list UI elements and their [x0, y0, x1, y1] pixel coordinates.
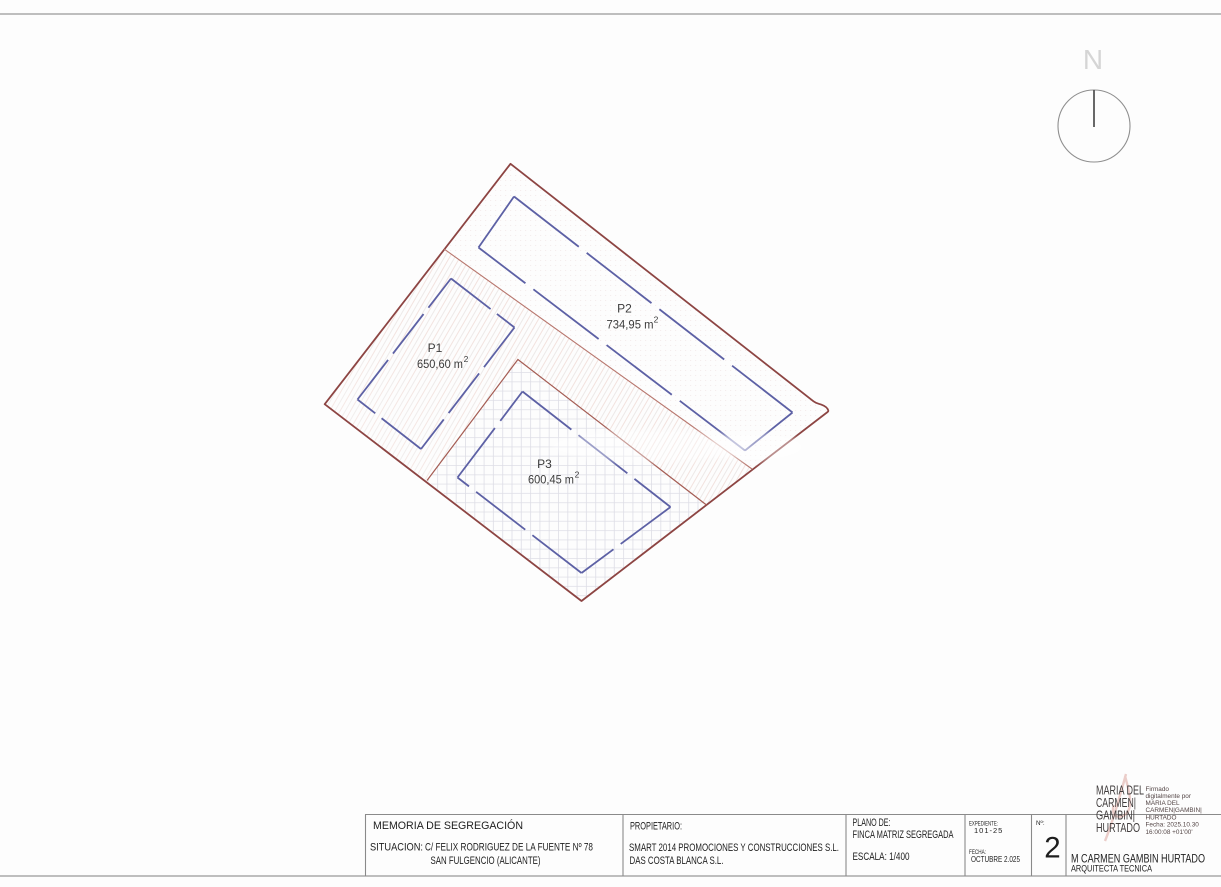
svg-text:FINCA MATRIZ SEGREGADA: FINCA MATRIZ SEGREGADA: [853, 829, 954, 841]
svg-text:2: 2: [575, 470, 580, 480]
svg-text:HURTADO: HURTADO: [1096, 821, 1140, 835]
svg-text:Firmado: Firmado: [1146, 786, 1170, 793]
svg-text:PLANO DE:: PLANO DE:: [853, 817, 891, 829]
svg-text:digitalmente por: digitalmente por: [1146, 793, 1192, 800]
svg-text:P2: P2: [617, 302, 632, 316]
svg-text:ARQUITECTA TECNICA: ARQUITECTA TECNICA: [1071, 864, 1153, 875]
svg-text:N: N: [1083, 44, 1103, 75]
svg-text:SITUACION:: SITUACION:: [370, 842, 423, 854]
svg-text:101-25: 101-25: [974, 826, 1003, 835]
svg-text:2: 2: [654, 315, 659, 325]
svg-text:P1: P1: [428, 341, 443, 355]
svg-text:CARMEN|GAMBIN|: CARMEN|GAMBIN|: [1146, 807, 1203, 814]
svg-text:600,45 m: 600,45 m: [528, 473, 574, 487]
svg-text:SMART 2014 PROMOCIONES Y CONST: SMART 2014 PROMOCIONES Y CONSTRUCCIONES …: [629, 842, 839, 854]
svg-text:Nº:: Nº:: [1036, 820, 1045, 827]
svg-text:HURTADO: HURTADO: [1146, 814, 1177, 821]
svg-text:P3: P3: [537, 457, 552, 471]
svg-text:650,60 m: 650,60 m: [417, 357, 463, 371]
svg-text:2: 2: [1044, 832, 1060, 865]
svg-text:DAS COSTA BLANCA S.L.: DAS COSTA BLANCA S.L.: [630, 855, 724, 867]
svg-text:PROPIETARIO:: PROPIETARIO:: [630, 821, 682, 833]
svg-text:ESCALA: 1/400: ESCALA: 1/400: [853, 851, 910, 863]
svg-text:Fecha: 2025.10.30: Fecha: 2025.10.30: [1146, 822, 1200, 829]
svg-text:734,95 m: 734,95 m: [607, 318, 654, 332]
svg-text:C/ FELIX RODRIGUEZ DE LA FUENT: C/ FELIX RODRIGUEZ DE LA FUENTE Nº 78: [425, 842, 593, 854]
svg-text:2: 2: [464, 354, 469, 364]
svg-text:MARIA DEL: MARIA DEL: [1146, 800, 1181, 807]
svg-text:MEMORIA DE SEGREGACIÓN: MEMORIA DE SEGREGACIÓN: [373, 819, 523, 832]
svg-text:OCTUBRE 2.025: OCTUBRE 2.025: [971, 855, 1020, 864]
svg-text:16:00:08 +01'00': 16:00:08 +01'00': [1146, 829, 1193, 836]
svg-text:SAN FULGENCIO (ALICANTE): SAN FULGENCIO (ALICANTE): [431, 855, 541, 867]
